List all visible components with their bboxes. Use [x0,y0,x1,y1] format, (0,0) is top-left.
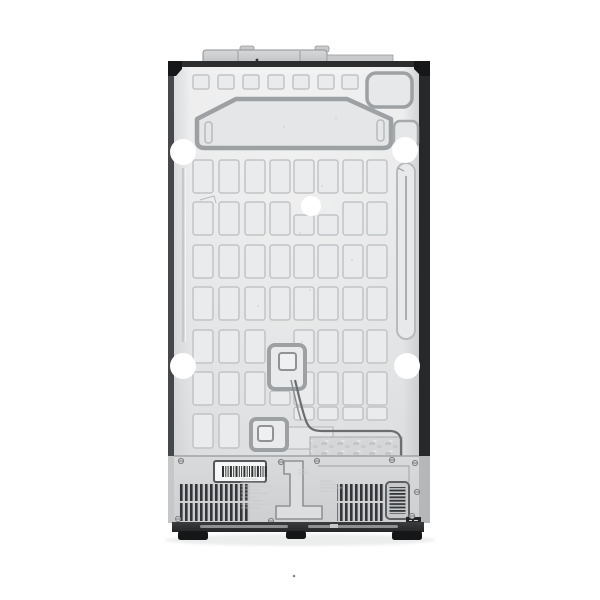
emboss-dent [193,202,213,235]
top-right-emboss-plate [367,73,412,107]
drain-grille [386,482,409,519]
barcode-bar [263,466,264,477]
emboss-dent [219,372,239,405]
barcode-bar [265,466,267,477]
emboss-dent [343,330,363,363]
emboss-dent [318,330,338,363]
emboss-dent-small [193,75,209,89]
barcode-bar [225,466,226,477]
mounting-hole [392,137,418,163]
barcode-label [214,461,267,482]
dust-speck [301,341,303,343]
emboss-dent [245,287,265,320]
emboss-dent-small [318,75,334,89]
emboss-dent [318,407,338,420]
emboss-dent [193,160,213,193]
foot [178,531,208,540]
emboss-dent [367,245,387,278]
vent-right-bottom-slats-icon [337,503,384,521]
barcode-bar [251,466,253,477]
emboss-dent [193,414,213,448]
emboss-dent-small [293,75,309,89]
vent-left-top-slats-icon [179,484,250,501]
emboss-dent [219,160,239,193]
emboss-dent [367,407,387,420]
emboss-dent [193,372,213,405]
base-slot-right [308,525,398,528]
condenser-foam-strip [310,437,402,456]
barcode-bar [239,466,240,477]
dust-speck [257,305,259,307]
emboss-dent [270,245,290,278]
emboss-dent [318,287,338,320]
top-edge-bar [168,61,430,67]
emboss-dent [318,245,338,278]
emboss-dent [294,287,314,320]
emboss-dent [193,330,213,363]
background-artifact-dot [293,575,296,578]
vent-right-top-slats-icon [337,484,384,501]
compressor-section [174,456,421,524]
emboss-dent [245,202,265,235]
hinge-screw-icon [256,59,259,62]
emboss-dent [367,202,387,235]
junction-plate-lower-slot [258,426,273,441]
barcode-bar [228,466,229,477]
emboss-dent-small [342,75,358,89]
dust-speck [335,117,337,119]
emboss-dent [343,372,363,405]
dust-speck [321,185,323,187]
emboss-dent [270,160,290,193]
barcode-bar [236,466,238,477]
mounting-hole [301,196,321,216]
emboss-dent [219,245,239,278]
junction-plate-upper-slot [279,353,296,370]
emboss-dent [343,407,363,420]
emboss-dent [270,391,290,405]
base-slot-left [200,525,288,528]
emboss-dent [294,160,314,193]
emboss-dent [343,202,363,235]
barcode-bar [249,466,250,477]
emboss-dent-small [218,75,234,89]
dust-speck [309,289,311,291]
emboss-dent [367,287,387,320]
emboss-grid-pattern [193,160,387,448]
dust-speck [299,232,301,234]
emboss-dent [318,372,338,405]
foot [392,531,422,540]
grille-slats-icon [390,487,406,514]
barcode-bar [260,466,261,477]
emboss-dent [270,287,290,320]
emboss-dent [245,160,265,193]
foot [286,531,306,539]
emboss-dent [245,330,265,363]
right-edge-lower [419,456,430,523]
mounting-hole [394,353,420,379]
emboss-dent [294,245,314,278]
base-bright-mark [330,524,338,528]
refrigerator-rear-illustration [0,0,600,600]
emboss-dent [318,160,338,193]
barcode-bar [247,466,248,477]
emboss-dent [193,245,213,278]
right-edge [419,64,430,456]
emboss-dent [219,330,239,363]
emboss-dent [245,245,265,278]
left-edge [168,64,174,456]
product-photo-canvas [0,0,600,600]
emboss-dent [318,215,338,235]
barcode-bar [233,466,234,477]
emboss-dent [343,287,363,320]
emboss-dent [219,202,239,235]
left-edge-lower [168,456,174,523]
emboss-dent-small [243,75,259,89]
mounting-hole [170,353,196,379]
top-emboss-square-row [193,75,358,89]
emboss-dent [367,372,387,405]
barcode-bar [243,466,245,477]
emboss-dent [294,215,314,235]
trapezoid-emboss-panel [197,99,391,148]
barcode-bar [241,466,242,477]
dust-speck [283,126,285,128]
emboss-dent [219,414,239,448]
barcode-bar [230,466,232,477]
emboss-dent [343,245,363,278]
emboss-dent [270,202,290,235]
emboss-dent [343,160,363,193]
emboss-dent [367,330,387,363]
emboss-dent-small [268,75,284,89]
barcode-bar [255,466,256,477]
emboss-dent [193,287,213,320]
emboss-dent [367,160,387,193]
emboss-dent [245,372,265,405]
emboss-dent [219,287,239,320]
barcode-bar [257,466,259,477]
vent-left-bottom-slats-icon [179,503,250,521]
barcode-bar [222,466,224,477]
dust-speck [351,259,353,261]
mounting-hole [170,139,196,165]
